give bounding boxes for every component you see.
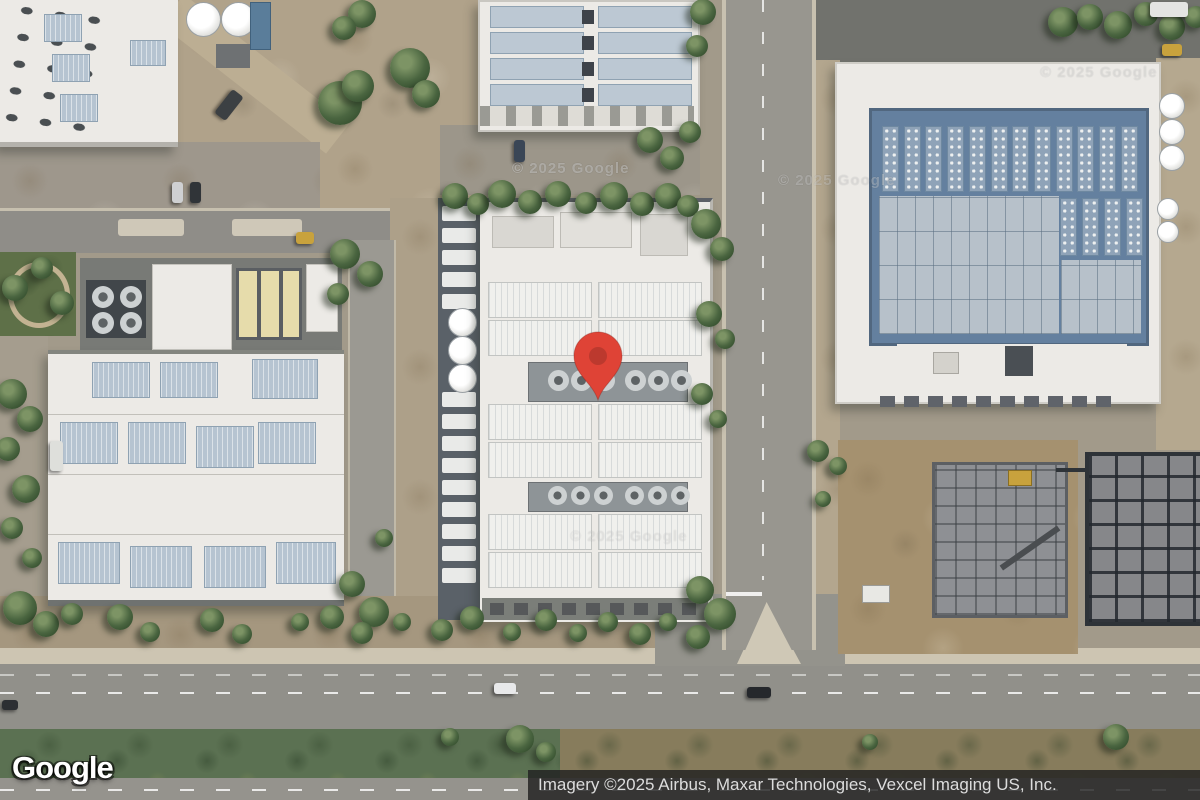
rooftop-panel [196,426,254,468]
rooftop-panel [92,362,150,398]
cooling-panel [490,32,584,54]
cooling-modules [438,198,480,620]
roof-unit [582,88,594,102]
lane-marking [762,0,764,580]
cooling-module [442,502,476,517]
roof-panel [598,404,702,440]
fan [120,286,142,308]
cooling-module [442,392,476,407]
storage-tank [186,2,221,37]
asphalt-top-right [808,0,1200,62]
cooling-module [442,546,476,561]
loading-dock-band [482,598,708,620]
dock-doors [837,64,1159,402]
roof-panel [488,442,592,478]
dock-door [952,396,967,407]
fan [571,486,590,505]
rooftop-panel [58,542,120,584]
road-vertical-west [348,240,396,640]
silo [1159,119,1185,145]
map-pin-icon [573,331,623,401]
cooling-module [442,250,476,265]
attribution-text: Imagery ©2025 Airbus, Maxar Technologies… [528,770,1200,800]
cooling-panel [598,6,692,28]
dock-door [1000,396,1015,407]
rooftop-panel [258,422,316,464]
roof-panel [598,282,702,318]
silo [1157,221,1179,243]
excavator [1008,470,1032,486]
cooling-module [442,294,476,309]
cooling-module [442,272,476,287]
rooftop-panel [204,546,266,588]
rooftop-panel [128,422,186,464]
site-trailer [862,585,890,603]
dock-door [538,603,552,615]
dock-door [562,603,576,615]
speed-hump [232,219,302,236]
cooling-module [442,480,476,495]
roof-unit [582,10,594,24]
fan [548,370,569,391]
fuel-tank [448,308,477,337]
roof-panel [488,282,592,318]
fan [594,486,613,505]
dock-door [634,603,648,615]
road-vertical-main [722,0,816,650]
map-pin[interactable] [573,331,623,401]
dock-door [1072,396,1087,407]
fan [648,486,667,505]
cooling-panel [490,58,584,80]
speed-hump [118,219,184,236]
dock-door [1024,396,1039,407]
roof-panel [488,404,592,440]
silo [1157,198,1179,220]
yard-west-of-pin-building [390,198,442,648]
lane-marking [0,692,1200,694]
rooftop-panel [276,542,336,584]
steel-beam [1056,468,1088,472]
annex-roof [306,264,338,332]
map-canvas[interactable]: © 2025 Google © 2025 Google © 2025 Googl… [0,0,1200,800]
dock-door [880,396,895,407]
rooftop-panels [480,202,710,622]
generator [261,271,279,337]
map-watermark: © 2025 Google [1040,64,1157,81]
fuel-tank [448,364,477,393]
garden-path [8,262,70,328]
cooling-strip-west [438,198,480,620]
dock-door [682,603,696,615]
map-watermark: © 2025 Google [778,172,895,189]
fan [548,486,567,505]
dock-door [1096,396,1111,407]
cooling-panel [598,58,692,80]
map-watermark: © 2025 Google [570,528,687,545]
building-steel-frame [1085,452,1200,626]
rooftop-panel [130,546,192,588]
dock-door [610,603,624,615]
dock-door [658,603,672,615]
lane-marking [0,674,1200,676]
building-pin [480,198,713,622]
cooling-module [442,228,476,243]
generator [283,271,299,337]
cooling-module [442,524,476,539]
fuel-tank [448,336,477,365]
roof-panel [598,442,702,478]
rooftop-panel [60,422,118,464]
roof-panel [44,14,82,42]
cooling-panel [598,84,692,106]
cooling-panel-grid [480,2,698,106]
dock-doors [482,598,708,620]
blue-basin [250,2,271,50]
annex-roof [152,264,232,350]
fan [671,486,690,505]
generator [239,271,257,337]
silo [1159,145,1185,171]
cooling-panel [598,32,692,54]
loading-dock-band [480,106,694,126]
dock-door [904,396,919,407]
fan [120,312,142,334]
rooftop-panels [48,354,344,600]
roof-panel [52,54,90,82]
roof-panel [130,40,166,66]
cooling-module [442,436,476,451]
map-watermark: © 2025 Google [512,160,629,177]
stop-line [726,592,762,596]
foundation-slab [932,462,1068,618]
silo [1159,93,1185,119]
rooftop-panel [160,362,218,398]
google-logo[interactable]: Google [12,750,113,786]
fan [625,370,646,391]
cooling-module [442,414,476,429]
dock-door [586,603,600,615]
dock-door [490,603,504,615]
roof-panel [598,552,702,588]
cooling-panel [490,6,584,28]
fan [648,370,669,391]
building-top-center [478,0,700,132]
rooftop-panel [252,359,318,399]
fan [92,312,114,334]
roof-unit [582,36,594,50]
building-right [835,62,1161,404]
building-left [48,350,344,606]
fan [625,486,644,505]
cooling-module [442,568,476,583]
dock-door [928,396,943,407]
dock-door [1048,396,1063,407]
utility-structure [216,44,250,68]
dock-door [976,396,991,407]
building-top-left [0,0,178,147]
parking-lot-top-left [0,142,320,212]
cooling-module [442,206,476,221]
dock-door [514,603,528,615]
roof-panel [60,94,98,122]
fan [671,370,692,391]
roof-panel [488,552,592,588]
cooling-module [442,458,476,473]
roof-unit [582,62,594,76]
attribution-bar: Imagery ©2025 Airbus, Maxar Technologies… [528,770,1200,800]
fan [92,286,114,308]
cooling-panel [490,84,584,106]
